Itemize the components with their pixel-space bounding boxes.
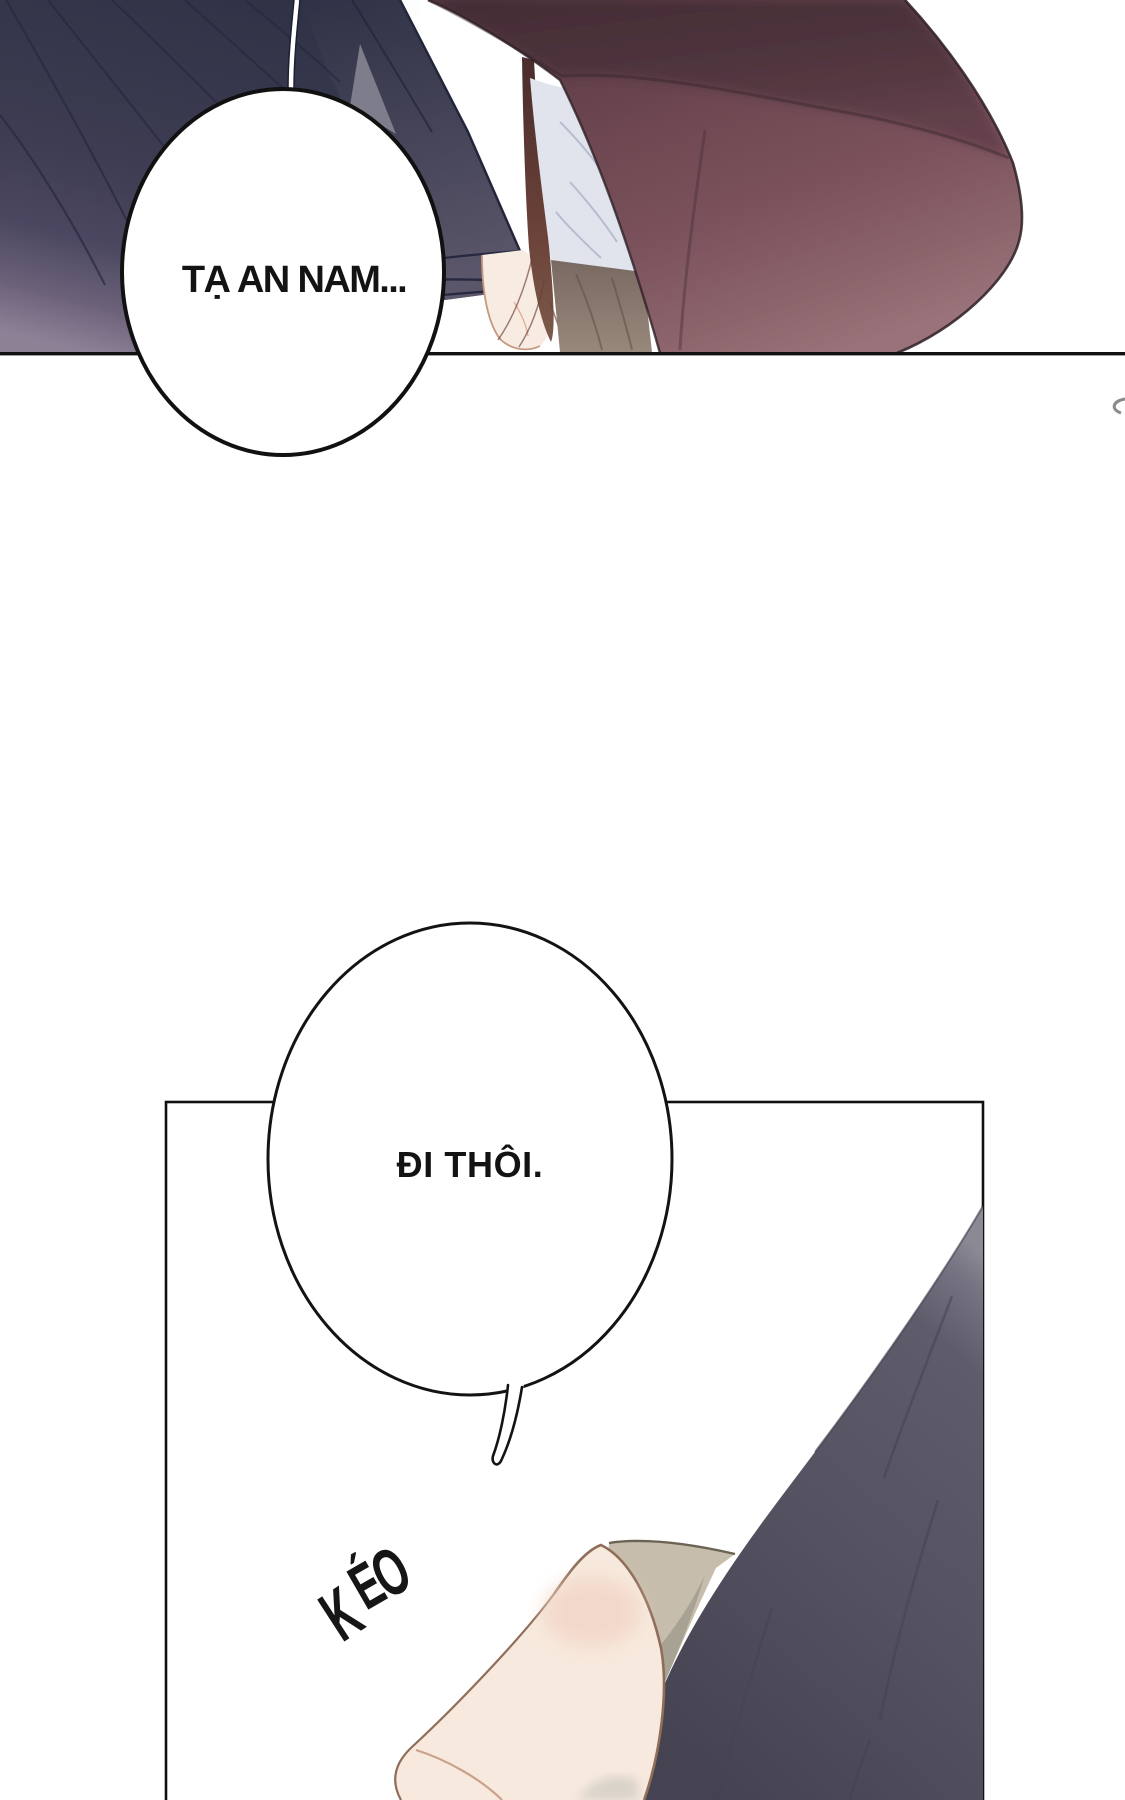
svg-text:ĐI THÔI.: ĐI THÔI. [397, 1143, 544, 1185]
svg-text:TẠ AN NAM...: TẠ AN NAM... [182, 259, 406, 301]
